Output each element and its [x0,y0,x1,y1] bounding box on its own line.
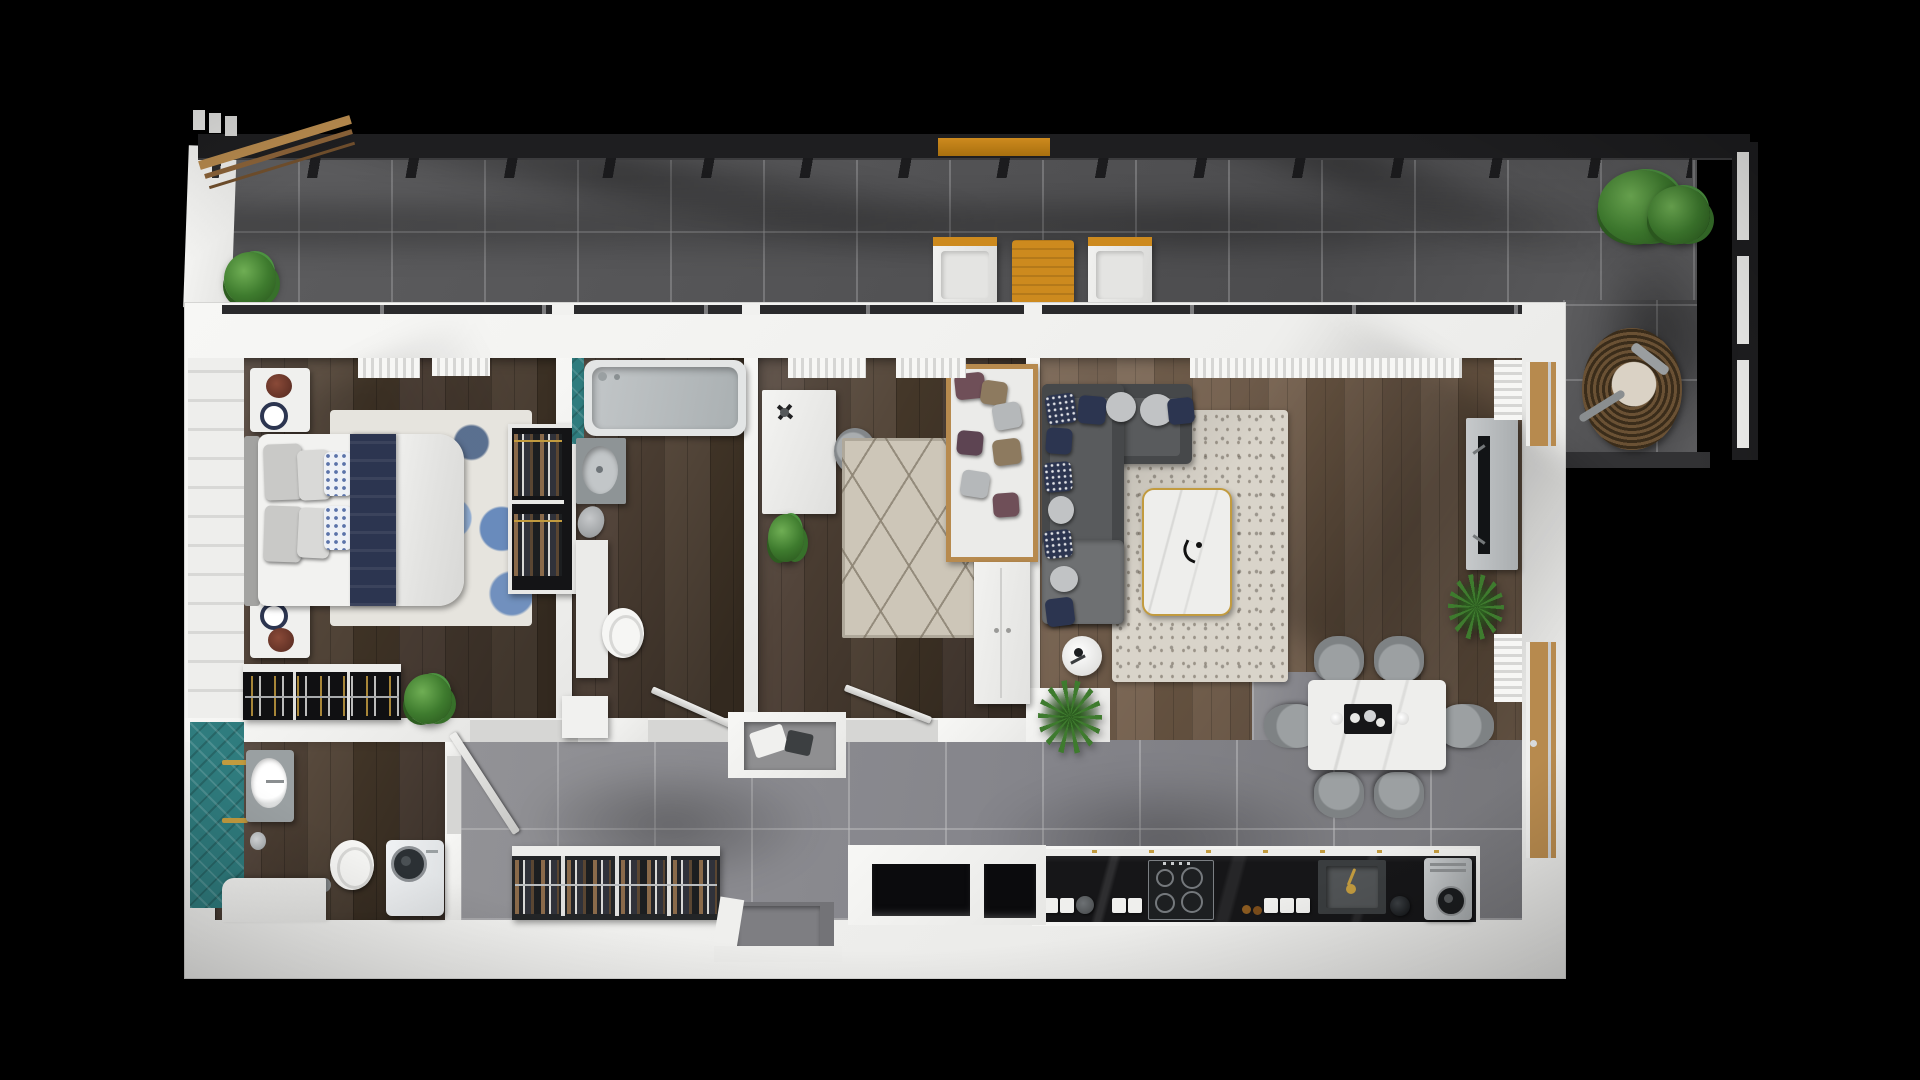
storage-cabinet [576,540,608,678]
canister [1128,898,1142,913]
storage-niche [872,864,970,916]
table-decor [1330,712,1343,725]
dresser-top [243,664,401,672]
low-dresser [243,664,401,720]
induction-hob [1148,860,1214,920]
dish [1364,710,1376,722]
closet-rail [515,884,717,886]
lounge-chair [933,237,997,307]
palm-plant [1038,680,1102,754]
canister [1296,898,1310,913]
dresser-divider [293,672,296,720]
toilet [602,608,644,658]
window-curtain [1190,358,1462,378]
door-mat [736,906,820,948]
wardrobe-rail [514,520,562,522]
wardrobe-rail [514,440,562,442]
lounge-chair-cushion [941,251,989,299]
basin-faucet [266,780,284,783]
egg-chair-frame [1630,342,1671,377]
closet-divider [615,856,619,916]
hob-burner [1181,867,1203,889]
egg-chair-leg [1578,389,1626,423]
gold-towel-bar [222,760,248,765]
hanging-clothes [673,860,717,914]
cushion [956,430,984,456]
potted-plant [404,674,452,724]
marble-dining-table [1308,680,1446,770]
toilet-roll [250,832,266,850]
utility-vanity [246,750,294,822]
round-side-table [1062,636,1102,676]
lounge-chair-headrest [1088,237,1152,246]
panelled-wall [188,358,244,718]
balcony-door-top [1526,362,1556,446]
hob-burner [1181,891,1203,913]
cushion [991,401,1023,431]
hanging-clothes [514,434,562,496]
balcony-right-parapet [1556,452,1710,468]
utility-wall-b [445,834,461,920]
window-curtain [1494,634,1522,702]
window-glazing-line [222,305,1522,314]
canister [1280,898,1294,913]
marble-coffee-table [1142,488,1232,616]
scatter-cushion [1048,496,1074,524]
dish [1350,713,1360,723]
hob-burner [1156,869,1174,887]
navy-runner [350,434,396,606]
mullion [552,303,574,315]
entry-storage-block [848,845,1046,925]
toilet [330,840,374,890]
hall-wall-d [938,718,1040,742]
wardrobe-handle [994,628,999,633]
window-curtain [358,358,420,378]
patterned-pillow [324,452,352,496]
washing-machine [386,840,444,916]
wall-bath-bed2 [744,358,758,718]
wardrobe-shelf [512,500,564,504]
door-leaf-flat [562,696,608,738]
basin-drain [596,466,603,473]
scatter-cushion [1043,461,1074,493]
cushion [992,437,1023,466]
scatter-cushion [1045,427,1073,455]
spice-jar [1253,906,1262,915]
palm-plant [1448,574,1504,640]
round-jar [1076,896,1094,914]
desk [762,390,836,514]
window-curtain [1494,360,1522,420]
scatter-cushion [1050,566,1078,592]
spice-jar [1242,905,1251,914]
pergola-caps [193,110,205,130]
kettle [1390,896,1410,916]
entry-bench-block [728,712,846,778]
decor-bowl [260,402,288,430]
coffee-machine [1424,858,1472,920]
mullion [742,303,760,315]
coffee-machine-vent [1430,869,1466,872]
hanging-clothes [514,514,562,576]
patterned-pillow [324,506,352,550]
vanity-unit [576,438,626,504]
wardrobe-handle [1006,628,1011,633]
door-handle [1530,740,1537,747]
dish [1376,718,1385,727]
potted-plant [768,514,804,562]
rail-shelf [938,138,1050,156]
closet-divider [561,856,565,916]
dining-chair [1374,636,1424,682]
bath-faucet [598,372,607,381]
lounge-chair [1088,237,1152,307]
teal-accent [572,358,584,444]
potted-tree-foliage [1648,186,1710,244]
canister [1264,898,1278,913]
scatter-cushion [1043,529,1074,560]
bathtub [584,360,746,436]
scatter-cushion [1077,395,1107,425]
cushion [992,492,1020,518]
cushion [959,469,991,499]
hob-burner [1155,893,1175,913]
timber-side-table [1012,240,1074,304]
window-curtain [896,358,966,378]
railing-crossbars [212,158,1692,178]
corner-counter [222,878,326,922]
wardrobe-seam [1000,568,1002,698]
threshold-bed2 [842,720,938,742]
railing-glass-panels [1737,152,1749,448]
table-decor-dot [1196,542,1202,548]
bath-drain [614,374,620,380]
tv-console [1466,418,1518,570]
serving-tray [1344,704,1392,734]
entry-threshold [714,946,842,962]
decor-bowl [260,602,288,630]
gold-faucet-base [1346,884,1356,894]
utility-basin [251,758,287,808]
washer-drum [401,856,411,866]
scatter-cushion [1167,397,1196,426]
dresser-rail [245,696,399,698]
canister [1112,898,1126,913]
hanging-clothes [621,860,665,914]
storage-niche [984,864,1036,918]
coffee-machine-vent [1430,863,1466,866]
balcony-door-bottom [1526,642,1556,858]
gold-handles [1040,850,1476,853]
nightstand-top [250,368,310,432]
closet-divider [667,856,671,916]
desk-fan-hub [780,408,789,417]
nightstand-flowers [266,374,292,398]
threshold-utility [447,756,461,834]
window-curtain [432,358,490,376]
open-coat-closet [512,846,720,920]
dining-chair [1314,636,1364,682]
television [1478,436,1490,554]
canister [1060,898,1074,913]
dining-chair [1374,772,1424,818]
floor-plan-scene [0,0,1920,1080]
toilet-seat [609,615,643,657]
window-curtain [788,358,866,378]
nightstand-flowers [268,628,294,652]
coffee-machine-dial [1444,894,1453,903]
daybed-sofa [946,364,1038,562]
canister [1044,898,1058,913]
lounge-chair-cushion [1096,251,1144,299]
scatter-cushion [1044,596,1075,627]
dining-chair [1314,772,1364,818]
hanging-clothes [567,860,611,914]
toilet-seat [337,847,373,889]
granite-sink [1318,860,1386,914]
mullion [1024,303,1042,315]
scatter-cushion [1044,392,1078,426]
wicker-egg-chair [1582,328,1682,450]
dining-chair [1438,704,1494,748]
scatter-cushion [1106,392,1136,422]
gold-towel-bar [222,818,248,823]
closet-top [512,846,720,856]
lounge-chair-headrest [933,237,997,246]
table-decor [1396,712,1409,725]
hanging-clothes [515,860,559,914]
washer-controls [426,850,438,853]
dresser-divider [347,672,350,720]
open-wardrobe [508,424,576,594]
potted-shrub [224,252,276,306]
hob-controls [1163,862,1193,865]
wardrobe [974,562,1030,704]
